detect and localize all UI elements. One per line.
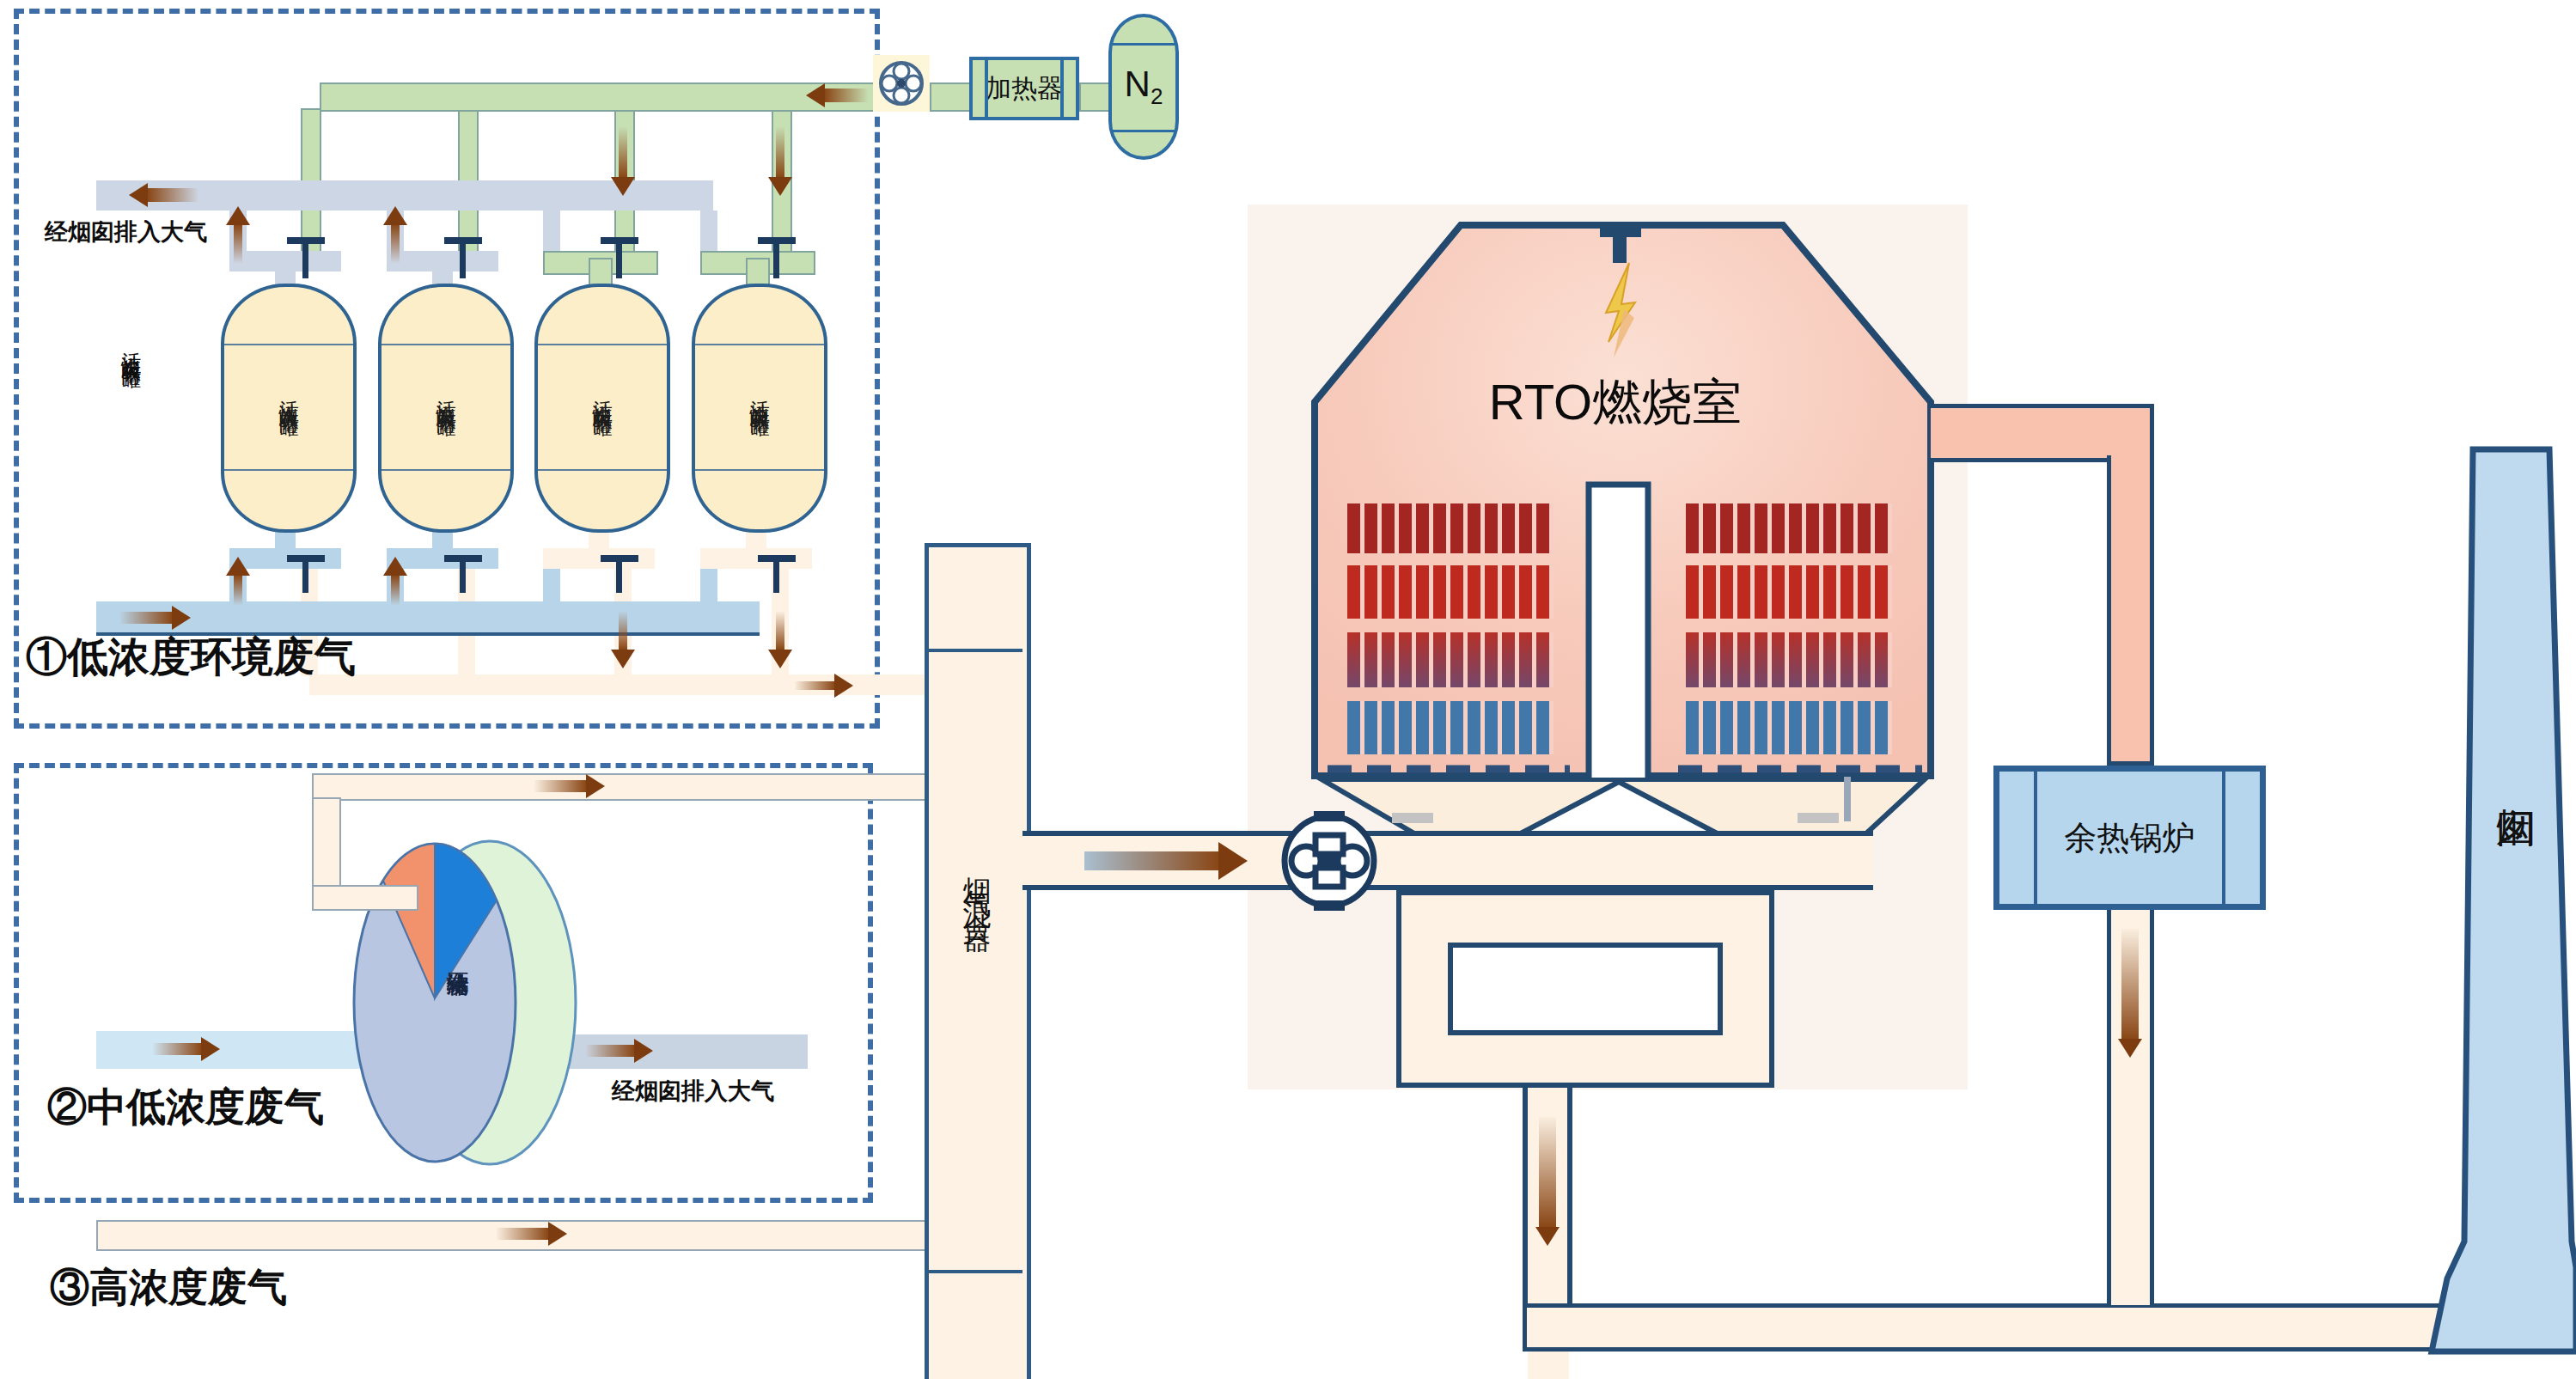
fan-heater-pipe (930, 82, 973, 112)
rto-center-channel (1589, 485, 1648, 778)
heater-band (985, 60, 988, 117)
blower-icon (1278, 809, 1381, 912)
tank-label: 活性炭吸附罐C (591, 385, 613, 431)
flow-arrow-icon (806, 79, 868, 112)
mixer-label: 烟气混合器 (957, 855, 996, 1104)
flow-arrow-icon (497, 1218, 567, 1249)
fan-icon (876, 58, 927, 109)
boiler-band (2222, 772, 2225, 904)
tank-seam (224, 469, 353, 471)
tank-label: 活性炭吸附罐D (748, 385, 770, 431)
ceramic-bed-row (1347, 503, 1554, 553)
tank-seam (382, 469, 510, 471)
supply-riser-c (543, 569, 560, 603)
flow-arrow-icon (384, 206, 406, 263)
wheel-label: 沸石浓缩转轮 (443, 955, 473, 1170)
flow-arrow-icon (769, 127, 791, 196)
carbon-tank-d: 活性炭吸附罐D (692, 284, 827, 533)
heater-box: 加热器 (969, 57, 1079, 120)
carbon-tank-b: 活性炭吸附罐B (378, 284, 514, 533)
funnel-tick (1392, 813, 1433, 823)
flow-arrow-icon (534, 772, 605, 801)
heater-band (1060, 60, 1064, 117)
region3-label: ③高浓度废气 (50, 1261, 287, 1315)
process-flow-diagram: 活性炭吸附罐A 活性炭吸附罐B 活性炭吸附罐C 活性炭吸附罐D 活性炭吸附罐C … (0, 0, 2576, 1379)
heater-n2-pipe (1079, 82, 1112, 112)
ceramic-bed-row (1347, 565, 1554, 619)
tank-label: 活性炭吸附罐A (278, 385, 299, 431)
stack-feed-stub (1528, 1352, 1569, 1379)
region2-label: ②中低浓度废气 (47, 1081, 324, 1134)
flow-arrow-icon (612, 127, 634, 196)
valve-icon (758, 555, 796, 593)
flow-arrow-icon (1526, 1117, 1569, 1246)
n2-seam (1112, 43, 1175, 46)
flow-arrow-icon (227, 557, 249, 605)
wheel-desorb-elbow-h (312, 885, 418, 911)
n2-tank: N2 (1108, 14, 1179, 160)
flow-arrow-icon (586, 1036, 653, 1065)
tank-seam (224, 344, 353, 345)
flow-arrow-icon (227, 206, 249, 263)
ceramic-bed-row (1686, 632, 1892, 687)
supply-riser-d (700, 569, 717, 603)
ceramic-bed-row (1347, 632, 1554, 687)
tank-seam (382, 344, 510, 345)
tank-seam (695, 469, 824, 471)
flow-arrow-icon (153, 1034, 220, 1064)
flow-arrow-icon (2108, 929, 2152, 1058)
valve-icon (758, 237, 796, 278)
funnel-stem (1844, 777, 1851, 821)
flow-arrow-icon (769, 612, 791, 668)
chimney-label: 烟囱 (2490, 778, 2543, 906)
flow-arrow-icon (1084, 837, 1248, 885)
side-tank-label: 活性炭吸附罐C (120, 337, 142, 552)
ceramic-bed-row (1686, 565, 1892, 619)
valve-icon (601, 555, 638, 593)
boiler-band (2034, 772, 2037, 904)
tank-seam (538, 344, 667, 345)
heater-label: 加热器 (986, 71, 1063, 107)
tank-label: 活性炭吸附罐B (435, 385, 456, 431)
flow-arrow-icon (129, 177, 198, 213)
rto-label: RTO燃烧室 (1444, 369, 1787, 436)
rto-bottom-duct-inner (1448, 943, 1723, 1035)
region1-label: ①低浓度环境废气 (26, 630, 356, 685)
mixer-seam (925, 649, 1022, 652)
mixer-seam (925, 1270, 1022, 1273)
flow-arrow-icon (384, 557, 406, 605)
carbon-tank-a: 活性炭吸附罐A (221, 284, 357, 533)
funnel-tick (1798, 813, 1839, 823)
flow-arrow-icon (612, 612, 634, 668)
tank-seam (695, 344, 824, 345)
ceramic-bed-row (1686, 503, 1892, 553)
ceramic-bed-row (1347, 701, 1554, 754)
flow-arrow-icon (795, 675, 853, 696)
valve-icon (444, 555, 482, 593)
exhaust-wheel-label: 经烟囱排入大气 (612, 1076, 774, 1107)
flow-arrow-icon (120, 603, 191, 632)
stack-feed-pipe (1523, 1303, 2468, 1352)
valve-icon (601, 237, 638, 278)
burner-icon-stem (1613, 225, 1627, 263)
wheel-desorb-pipe (312, 773, 931, 801)
valve-icon (444, 237, 482, 278)
n2-header-pipe (320, 82, 876, 112)
n2-seam (1112, 130, 1175, 132)
n2-label: N2 (1125, 64, 1163, 110)
valve-icon (287, 555, 325, 593)
valve-icon (287, 237, 325, 278)
rto-outlet-pipe-h (1931, 404, 2154, 462)
boiler-label: 余热锅炉 (2065, 816, 2195, 860)
rto-outlet-pipe-v (2107, 455, 2154, 766)
exhaust-top-label: 经烟囱排入大气 (45, 217, 207, 247)
carbon-tank-c: 活性炭吸附罐C (534, 284, 670, 533)
tank-seam (538, 469, 667, 471)
ceramic-bed-row (1686, 701, 1892, 754)
waste-heat-boiler: 余热锅炉 (1993, 766, 2266, 910)
